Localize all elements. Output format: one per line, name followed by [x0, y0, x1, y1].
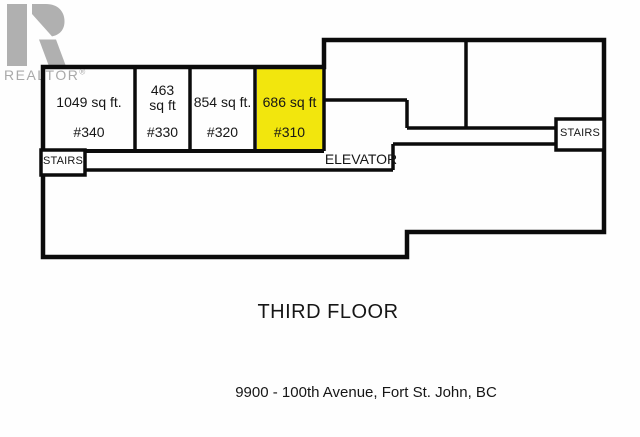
room-340: 1049 sq ft. #340	[43, 67, 135, 151]
room-310: 686 sq ft #310	[255, 67, 324, 151]
elevator-label: ELEVATOR	[322, 151, 400, 167]
address-caption: 9900 - 100th Avenue, Fort St. John, BC	[216, 384, 516, 402]
room-330-unit: #330	[135, 125, 190, 140]
room-310-area: 686 sq ft	[255, 95, 324, 110]
stairs-right-label: STAIRS	[556, 127, 604, 140]
floor-plan-drawing	[0, 0, 640, 437]
floor-title: THIRD FLOOR	[178, 300, 478, 324]
stairs-left-label: STAIRS	[41, 155, 85, 168]
room-340-area: 1049 sq ft.	[43, 95, 135, 110]
room-330-area: 463 sq ft	[135, 83, 190, 113]
room-340-unit: #340	[43, 125, 135, 140]
room-320: 854 sq ft. #320	[190, 67, 255, 151]
room-310-unit: #310	[255, 125, 324, 140]
room-320-area: 854 sq ft.	[190, 95, 255, 110]
room-320-unit: #320	[190, 125, 255, 140]
room-330: 463 sq ft #330	[135, 67, 190, 151]
floor-plan-page: REALTOR®	[0, 0, 640, 437]
